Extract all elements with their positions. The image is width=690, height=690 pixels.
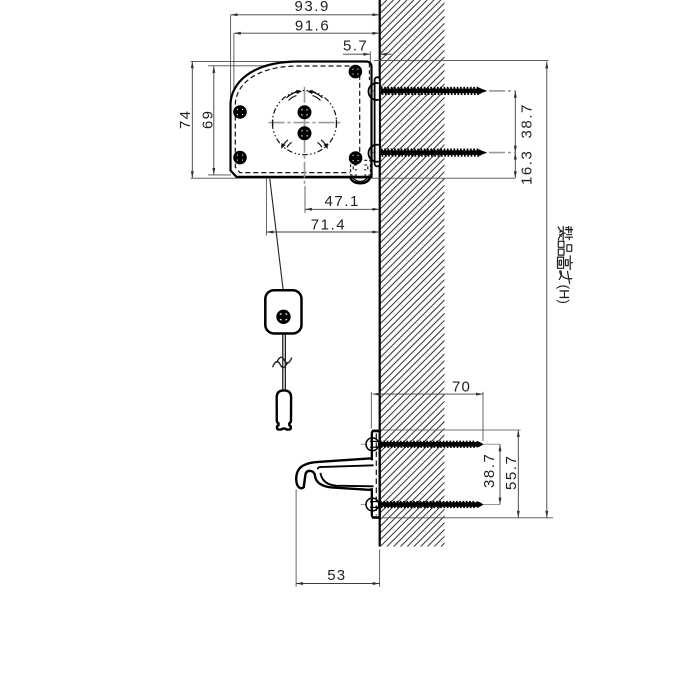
svg-text:(H): (H) bbox=[557, 285, 573, 304]
svg-text:47.1: 47.1 bbox=[324, 193, 359, 210]
svg-text:38.7: 38.7 bbox=[518, 103, 535, 138]
svg-text:38.7: 38.7 bbox=[481, 453, 498, 488]
svg-text:16.3: 16.3 bbox=[518, 150, 535, 185]
svg-text:91.6: 91.6 bbox=[295, 17, 330, 34]
svg-text:53: 53 bbox=[327, 567, 346, 584]
svg-text:70: 70 bbox=[452, 379, 471, 396]
svg-text:74: 74 bbox=[177, 110, 194, 129]
svg-text:71.4: 71.4 bbox=[311, 217, 346, 234]
svg-text:5.7: 5.7 bbox=[343, 38, 368, 55]
svg-text:93.9: 93.9 bbox=[294, 0, 329, 15]
svg-text:69: 69 bbox=[199, 110, 216, 129]
svg-text:55.7: 55.7 bbox=[503, 455, 520, 490]
